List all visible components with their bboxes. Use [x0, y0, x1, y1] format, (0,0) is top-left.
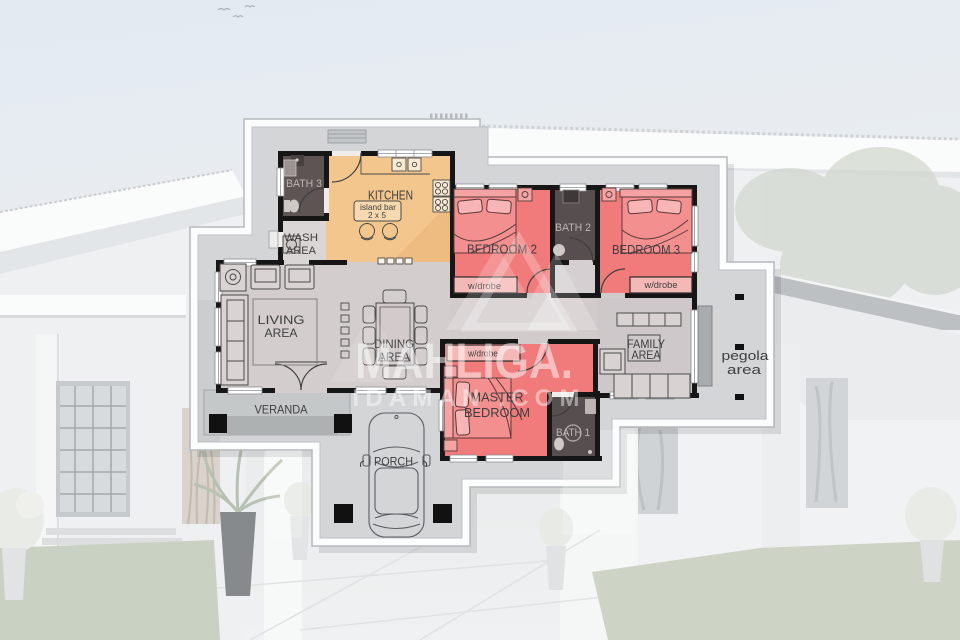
svg-text:AREA: AREA [286, 245, 317, 257]
svg-text:BATH 1: BATH 1 [556, 427, 590, 439]
svg-text:LIVING: LIVING [258, 313, 305, 327]
svg-text:VERANDA: VERANDA [255, 405, 308, 417]
svg-text:WASH: WASH [284, 232, 318, 244]
svg-text:BATH 2: BATH 2 [555, 222, 591, 234]
svg-text:BEDROOM 3: BEDROOM 3 [612, 242, 680, 257]
svg-text:BATH 3: BATH 3 [286, 178, 322, 190]
svg-text:AREA: AREA [632, 350, 661, 362]
svg-text:AREA: AREA [265, 326, 298, 340]
svg-text:pegola: pegola [722, 348, 770, 363]
svg-text:PORCH: PORCH [374, 455, 413, 469]
svg-text:KITCHEN: KITCHEN [368, 188, 413, 203]
svg-text:MAHLIGA.: MAHLIGA. [355, 333, 573, 389]
svg-text:w/drobe: w/drobe [643, 280, 677, 290]
svg-text:2 x 5: 2 x 5 [368, 210, 386, 220]
svg-text:area: area [727, 362, 762, 377]
